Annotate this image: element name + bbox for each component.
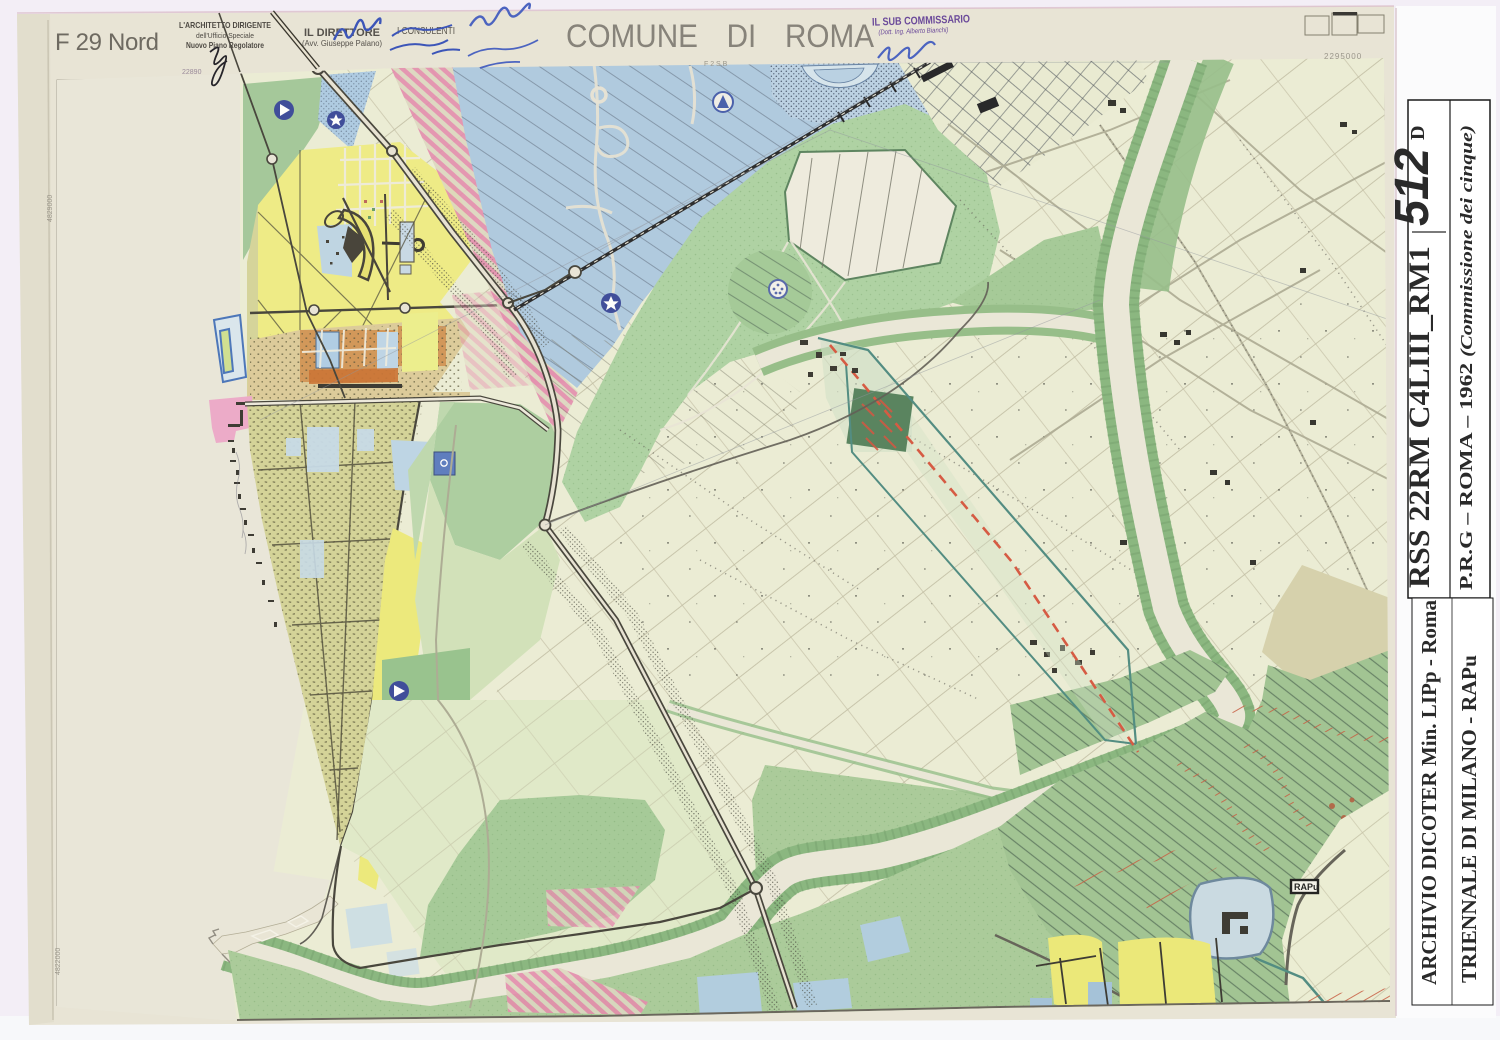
svg-text:D: D bbox=[1407, 126, 1429, 140]
svg-text:512: 512 bbox=[1386, 148, 1439, 226]
svg-text:F 2 S.B: F 2 S.B bbox=[704, 61, 728, 68]
svg-text:(Avv. Giuseppe Palano): (Avv. Giuseppe Palano) bbox=[302, 39, 382, 48]
svg-text:dell'Ufficio Speciale: dell'Ufficio Speciale bbox=[196, 31, 254, 40]
svg-text:F 29 Nord: F 29 Nord bbox=[55, 29, 159, 56]
svg-text:2295000: 2295000 bbox=[1324, 52, 1362, 61]
svg-text:L'ARCHITETTO DIRIGENTE: L'ARCHITETTO DIRIGENTE bbox=[179, 20, 271, 30]
svg-text:TRIENNALE DI MILANO - RAPu: TRIENNALE DI MILANO - RAPu bbox=[1457, 655, 1481, 983]
svg-text:4822000: 4822000 bbox=[55, 948, 62, 975]
svg-text:COMUNE DI ROMA: COMUNE DI ROMA bbox=[566, 18, 875, 54]
svg-text:22890: 22890 bbox=[182, 69, 202, 76]
svg-text:RSS 22RM C4LIII_RM1: RSS 22RM C4LIII_RM1 bbox=[1403, 246, 1436, 588]
svg-text:P.R.G – ROMA – 1962 (Commiss: P.R.G – ROMA – 1962 (Commissione dei cin… bbox=[1456, 125, 1476, 590]
svg-text:Nuovo Piano Regolatore: Nuovo Piano Regolatore bbox=[186, 41, 264, 50]
svg-text:ARCHIVIO DICOTER Min. LIPp - R: ARCHIVIO DICOTER Min. LIPp - Roma bbox=[1417, 600, 1441, 985]
svg-text:4829000: 4829000 bbox=[47, 195, 54, 222]
